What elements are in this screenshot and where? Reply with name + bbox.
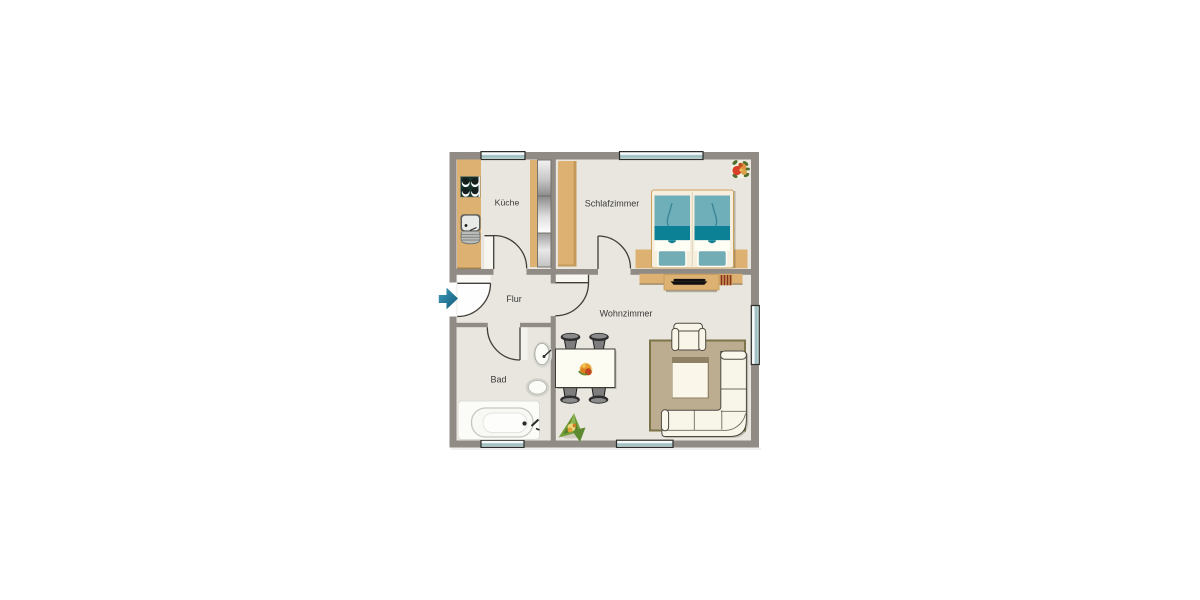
svg-text:Schlafzimmer: Schlafzimmer [585,199,640,209]
svg-text:Küche: Küche [495,198,520,208]
svg-text:Bad: Bad [490,375,506,385]
svg-text:Flur: Flur [506,294,522,304]
svg-text:Wohnzimmer: Wohnzimmer [600,308,653,318]
